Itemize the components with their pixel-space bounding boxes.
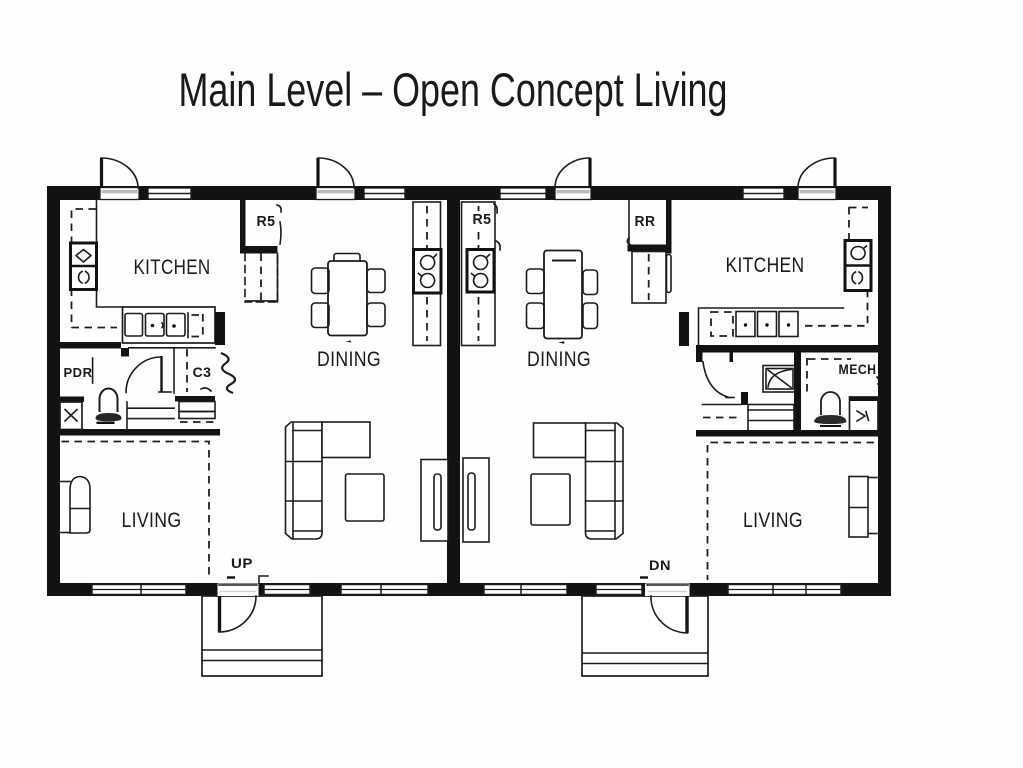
svg-text:LIVING: LIVING xyxy=(743,509,803,532)
svg-text:KITCHEN: KITCHEN xyxy=(134,256,211,279)
svg-text:LIVING: LIVING xyxy=(122,509,182,532)
svg-text:PDR: PDR xyxy=(64,365,93,380)
svg-text:C3: C3 xyxy=(193,364,212,380)
svg-text:Main Level – Open Concept Livi: Main Level – Open Concept Living xyxy=(179,63,728,116)
svg-text:R5: R5 xyxy=(473,211,492,228)
svg-text:DINING: DINING xyxy=(527,348,591,371)
svg-text:DINING: DINING xyxy=(317,348,381,371)
svg-text:RR: RR xyxy=(635,213,656,230)
svg-text:UP: UP xyxy=(231,555,253,571)
svg-text:MECH: MECH xyxy=(839,362,877,377)
svg-text:DN: DN xyxy=(649,557,671,573)
svg-text:KITCHEN: KITCHEN xyxy=(726,254,805,277)
svg-text:R5: R5 xyxy=(257,213,276,230)
